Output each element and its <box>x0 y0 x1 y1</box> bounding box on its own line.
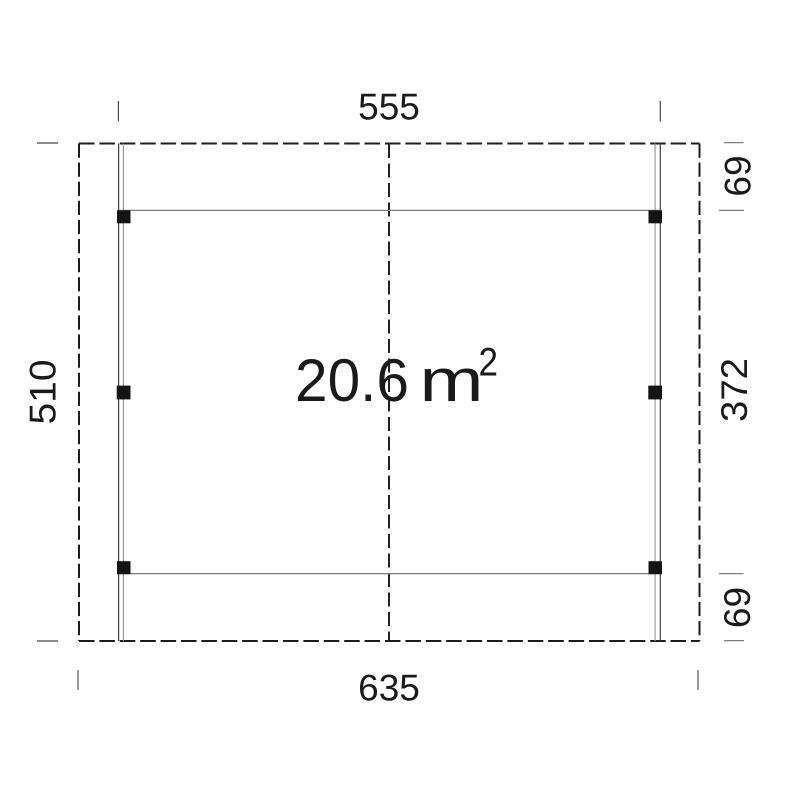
svg-text:555: 555 <box>358 87 420 128</box>
svg-text:69: 69 <box>718 155 759 196</box>
svg-text:69: 69 <box>717 587 758 628</box>
svg-text:2: 2 <box>479 341 499 385</box>
svg-text:510: 510 <box>22 360 63 425</box>
svg-text:20.6: 20.6 <box>295 347 409 414</box>
svg-text:635: 635 <box>358 668 420 709</box>
svg-text:372: 372 <box>714 358 755 422</box>
svg-text:m: m <box>420 347 484 414</box>
